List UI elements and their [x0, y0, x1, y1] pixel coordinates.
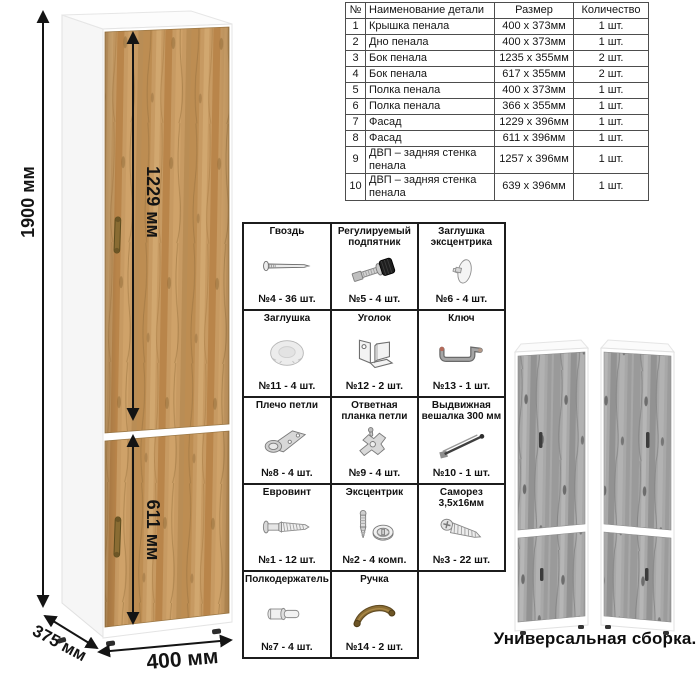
parts-cell: 400 х 373мм: [495, 35, 574, 51]
variant-caption: Универсальная сборка.: [490, 629, 700, 649]
hw-item-qty: №6 - 4 шт.: [420, 294, 503, 306]
parts-cell: 1229 х 396мм: [495, 115, 574, 131]
parts-cell: 366 х 355мм: [495, 99, 574, 115]
hw-item-name: Эксцентрик: [333, 487, 416, 499]
parts-cell: 1 шт.: [574, 19, 649, 35]
hw-item-qty: №2 - 4 комп.: [333, 555, 416, 567]
table-row: 4Бок пенала617 х 355мм2 шт.: [346, 67, 649, 83]
hinge-plate-icon: [333, 422, 416, 468]
parts-cell: 7: [346, 115, 366, 131]
hw-item-qty: №9 - 4 шт.: [333, 468, 416, 480]
hw-item-name: Заглушка эксцентрика: [420, 226, 503, 248]
pullout-hanger-icon: [420, 422, 503, 468]
parts-cell: 617 х 355мм: [495, 67, 574, 83]
hw-item-qty: №3 - 22 шт.: [420, 555, 503, 567]
parts-table-header-row: №Наименование деталиРазмерКоличество: [346, 3, 649, 19]
table-row: 6Полка пенала366 х 355мм1 шт.: [346, 99, 649, 115]
variant-right-lower-door: [604, 532, 671, 622]
hw-item-name: Ключ: [420, 313, 503, 325]
table-row: 3Бок пенала1235 х 355мм2 шт.: [346, 51, 649, 67]
lower-door-handle-icon: [114, 517, 121, 557]
parts-col-header: Наименование детали: [366, 3, 495, 19]
width-dimension-label: 400 мм: [146, 645, 220, 674]
table-row: 8Фасад611 х 396мм1 шт.: [346, 131, 649, 147]
hw-item-qty: №12 - 2 шт.: [333, 381, 416, 393]
hex-key-icon: [420, 325, 503, 381]
hw-cell: Евровинт№1 - 12 шт.: [243, 484, 331, 571]
nail-icon: [245, 238, 329, 294]
parts-cell: 3: [346, 51, 366, 67]
hw-item-qty: №10 - 1 шт.: [420, 468, 503, 480]
parts-cell: 4: [346, 67, 366, 83]
hw-cell: Заглушка эксцентрика№6 - 4 шт.: [418, 223, 505, 310]
parts-cell: 10: [346, 173, 366, 200]
parts-cell: Полка пенала: [366, 99, 495, 115]
hw-item-qty: №5 - 4 шт.: [333, 294, 416, 306]
height-dimension-label: 1900 мм: [18, 166, 38, 238]
parts-cell: 1 шт.: [574, 115, 649, 131]
depth-dimension-label: 375 мм: [29, 621, 89, 665]
handle-icon: [333, 586, 416, 642]
parts-cell: 2 шт.: [574, 67, 649, 83]
variant-right-upper-handle-icon: [646, 432, 650, 448]
assembly-sheet: 1900 мм 1229 мм 611 мм 400 мм 375 мм: [0, 0, 700, 683]
parts-cell: 1 шт.: [574, 147, 649, 174]
variant-left-upper-door: [518, 352, 585, 530]
hw-item-qty: №11 - 4 шт.: [245, 381, 329, 393]
euro-screw-icon: [245, 499, 329, 555]
parts-cell: 1: [346, 19, 366, 35]
hw-cell: Заглушка№11 - 4 шт.: [243, 310, 331, 397]
hw-item-name: Ручка: [333, 574, 416, 586]
variant-left-lower-door: [518, 532, 585, 622]
hw-item-qty: №13 - 1 шт.: [420, 381, 503, 393]
parts-col-header: №: [346, 3, 366, 19]
corner-bracket-icon: [333, 325, 416, 381]
hw-item-name: Выдвижная вешалка 300 мм: [420, 400, 503, 422]
table-row: 9ДВП – задняя стенка пенала1257 х 396мм1…: [346, 147, 649, 174]
hw-cell: Плечо петли№8 - 4 шт.: [243, 397, 331, 484]
parts-cell: Крышка пенала: [366, 19, 495, 35]
hw-item-name: Регулируемый подпятник: [333, 226, 416, 248]
hardware-row: Плечо петли№8 - 4 шт.Ответная планка пет…: [243, 397, 505, 484]
lower-door-dimension-label: 611 мм: [143, 500, 163, 561]
hw-cell: Ручка№14 - 2 шт.: [331, 571, 418, 658]
parts-cell: 639 х 396мм: [495, 173, 574, 200]
shelf-pin-icon: [245, 586, 329, 642]
parts-cell: 1 шт.: [574, 99, 649, 115]
table-row: 10ДВП – задняя стенка пенала639 х 396мм1…: [346, 173, 649, 200]
parts-cell: Бок пенала: [366, 67, 495, 83]
parts-cell: Фасад: [366, 131, 495, 147]
upper-door-shading: [105, 27, 229, 433]
cover-cap-icon: [245, 325, 329, 381]
hardware-grid: Гвоздь№4 - 36 шт.Регулируемый подпятник№…: [242, 222, 506, 659]
hw-item-name: Полкодержатель: [245, 574, 329, 586]
hw-item-name: Евровинт: [245, 487, 329, 499]
parts-col-header: Количество: [574, 3, 649, 19]
hw-item-qty: №1 - 12 шт.: [245, 555, 329, 567]
variant-cabinets-drawing: [515, 340, 674, 635]
table-row: 1Крышка пенала400 х 373мм1 шт.: [346, 19, 649, 35]
hw-item-name: Ответная планка петли: [333, 400, 416, 422]
hardware-row: Евровинт№1 - 12 шт.Эксцентрик№2 - 4 комп…: [243, 484, 505, 571]
table-row: 2Дно пенала400 х 373мм1 шт.: [346, 35, 649, 51]
variant-left-upper-handle-icon: [539, 432, 543, 448]
hinge-arm-icon: [245, 412, 329, 468]
cabinet-foot: [106, 640, 116, 646]
parts-cell: ДВП – задняя стенка пенала: [366, 147, 495, 174]
parts-cell: 8: [346, 131, 366, 147]
hw-item-qty: №7 - 4 шт.: [245, 642, 329, 654]
hw-item-qty: №14 - 2 шт.: [333, 642, 416, 654]
parts-cell: 5: [346, 83, 366, 99]
hw-cell: Выдвижная вешалка 300 мм№10 - 1 шт.: [418, 397, 505, 484]
hw-item-name: Плечо петли: [245, 400, 329, 412]
parts-cell: 9: [346, 147, 366, 174]
hw-cell: Регулируемый подпятник№5 - 4 шт.: [331, 223, 418, 310]
parts-cell: 611 х 396мм: [495, 131, 574, 147]
parts-cell: 1 шт.: [574, 131, 649, 147]
parts-cell: 400 х 373мм: [495, 19, 574, 35]
cabinet-foot: [212, 628, 222, 634]
hw-cell: Ключ№13 - 1 шт.: [418, 310, 505, 397]
hw-item-name: Саморез 3,5х16мм: [420, 487, 503, 509]
parts-cell: Бок пенала: [366, 51, 495, 67]
hw-item-name: Гвоздь: [245, 226, 329, 238]
cam-lock-icon: [333, 499, 416, 555]
parts-cell: Фасад: [366, 115, 495, 131]
upper-door-handle-icon: [114, 217, 121, 253]
variant-left-lower-handle-icon: [540, 568, 544, 581]
parts-cell: Дно пенала: [366, 35, 495, 51]
parts-table: №Наименование деталиРазмерКоличество 1Кр…: [345, 2, 649, 201]
cabinet-side-panel: [62, 15, 103, 637]
hw-item-qty: №8 - 4 шт.: [245, 468, 329, 480]
main-cabinet-drawing: 1900 мм 1229 мм 611 мм 400 мм 375 мм: [18, 11, 232, 674]
parts-cell: 1235 х 355мм: [495, 51, 574, 67]
lower-door-shading: [105, 431, 229, 627]
parts-col-header: Размер: [495, 3, 574, 19]
hw-cell: Уголок№12 - 2 шт.: [331, 310, 418, 397]
hw-cell: Саморез 3,5х16мм№3 - 22 шт.: [418, 484, 505, 571]
hardware-row: Заглушка№11 - 4 шт.Уголок№12 - 2 шт.Ключ…: [243, 310, 505, 397]
hw-item-name: Уголок: [333, 313, 416, 325]
parts-cell: 1 шт.: [574, 83, 649, 99]
hw-cell: Ответная планка петли№9 - 4 шт.: [331, 397, 418, 484]
hw-cell: Эксцентрик№2 - 4 комп.: [331, 484, 418, 571]
table-row: 7Фасад1229 х 396мм1 шт.: [346, 115, 649, 131]
hw-item-name: Заглушка: [245, 313, 329, 325]
hw-item-qty: №4 - 36 шт.: [245, 294, 329, 306]
parts-cell: 2 шт.: [574, 51, 649, 67]
cam-cap-icon: [420, 248, 503, 294]
parts-cell: 6: [346, 99, 366, 115]
self-tapping-screw-icon: [420, 509, 503, 555]
variant-right-upper-door: [604, 352, 671, 530]
hw-cell: Полкодержатель№7 - 4 шт.: [243, 571, 331, 658]
table-row: 5Полка пенала400 х 373мм1 шт.: [346, 83, 649, 99]
parts-cell: 1257 х 396мм: [495, 147, 574, 174]
hardware-row: Гвоздь№4 - 36 шт.Регулируемый подпятник№…: [243, 223, 505, 310]
adjustable-foot-icon: [333, 248, 416, 294]
hardware-row: Полкодержатель№7 - 4 шт.Ручка№14 - 2 шт.: [243, 571, 505, 658]
hw-cell: Гвоздь№4 - 36 шт.: [243, 223, 331, 310]
parts-cell: 2: [346, 35, 366, 51]
parts-cell: Полка пенала: [366, 83, 495, 99]
upper-door-dimension-label: 1229 мм: [143, 166, 163, 238]
parts-cell: 1 шт.: [574, 35, 649, 51]
variant-right-lower-handle-icon: [645, 568, 649, 581]
parts-cell: 400 х 373мм: [495, 83, 574, 99]
parts-cell: ДВП – задняя стенка пенала: [366, 173, 495, 200]
parts-cell: 1 шт.: [574, 173, 649, 200]
